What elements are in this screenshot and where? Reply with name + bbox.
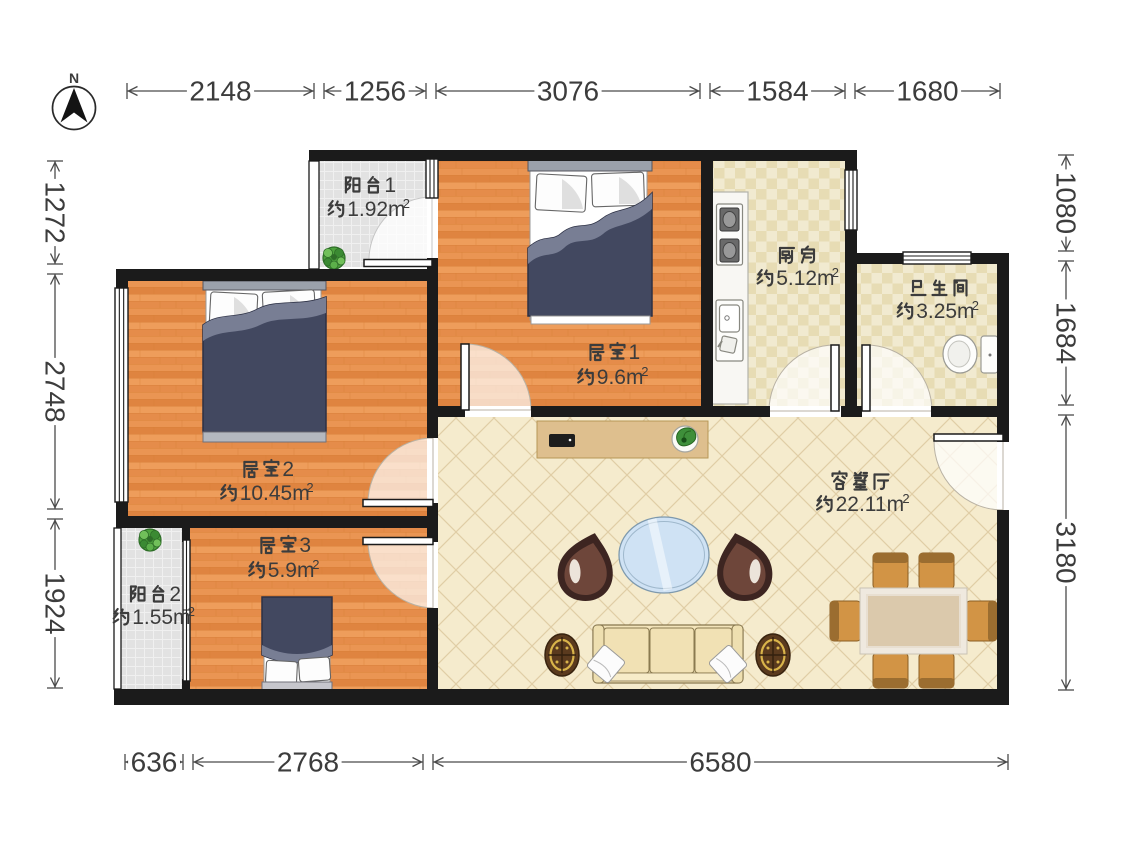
svg-text:1924: 1924 [40,572,71,634]
svg-text:1: 1 [384,174,396,197]
svg-text:1080: 1080 [1051,172,1082,234]
svg-text:2: 2 [306,480,313,495]
svg-text:N: N [69,70,79,86]
svg-text:9.6m: 9.6m [597,366,644,389]
svg-text:2: 2 [188,604,195,619]
svg-text:1680: 1680 [896,76,958,107]
svg-text:2768: 2768 [277,747,339,778]
svg-text:2: 2 [972,298,979,313]
svg-text:3076: 3076 [537,76,599,107]
svg-text:3: 3 [299,534,311,557]
svg-text:3180: 3180 [1051,521,1082,583]
svg-text:2: 2 [403,196,410,211]
svg-text:1.92m: 1.92m [347,198,405,221]
svg-text:22.11m: 22.11m [836,493,905,516]
svg-text:6580: 6580 [689,747,751,778]
svg-text:5.12m: 5.12m [776,267,834,290]
svg-text:1.55m: 1.55m [132,606,190,629]
svg-text:2: 2 [902,491,909,506]
svg-text:2148: 2148 [189,76,251,107]
svg-text:5.9m: 5.9m [268,559,315,582]
svg-text:2: 2 [282,458,294,481]
svg-text:1584: 1584 [746,76,808,107]
svg-text:1272: 1272 [40,181,71,243]
svg-text:2: 2 [641,364,648,379]
svg-text:2748: 2748 [40,360,71,422]
svg-text:1256: 1256 [344,76,406,107]
svg-text:2: 2 [169,583,181,606]
svg-text:2: 2 [832,265,839,280]
svg-text:10.45m: 10.45m [240,482,310,505]
svg-text:3.25m: 3.25m [916,300,974,323]
svg-text:636: 636 [131,747,178,778]
svg-text:1: 1 [629,341,641,364]
svg-text:1684: 1684 [1051,302,1082,364]
svg-text:2: 2 [312,557,319,572]
